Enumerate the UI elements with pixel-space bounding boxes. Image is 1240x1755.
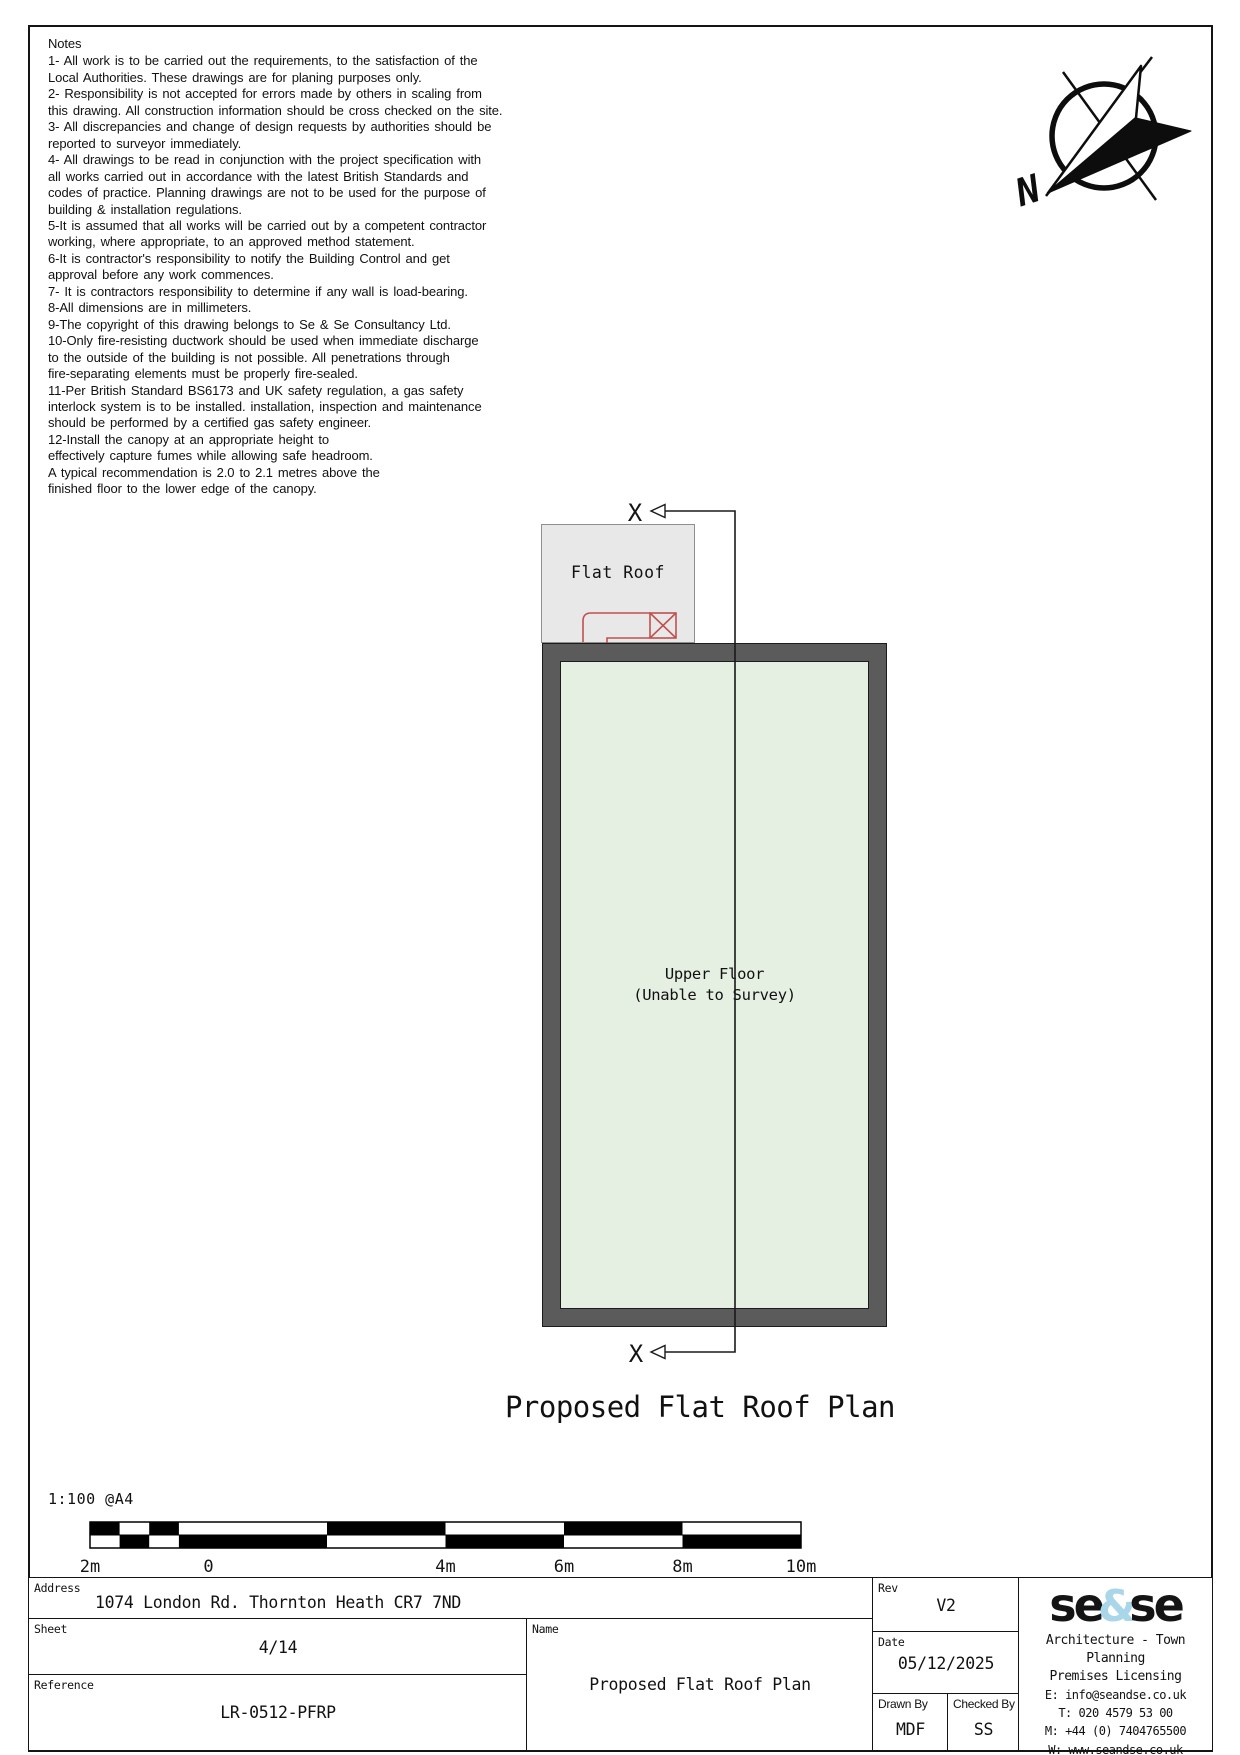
drawing-title: Proposed Flat Roof Plan: [460, 1390, 940, 1424]
name-value: Proposed Flat Roof Plan: [527, 1619, 873, 1750]
flat-roof-label: Flat Roof: [542, 563, 694, 582]
titleblock-checkedby-cell: Checked By SS: [947, 1693, 1020, 1751]
titleblock-sheet-cell: Sheet 4/14: [28, 1618, 528, 1676]
drawing-sheet: Notes 1- All work is to be carried out t…: [0, 0, 1240, 1755]
flat-roof-area: Flat Roof: [541, 524, 695, 643]
reference-value: LR-0512-PFRP: [29, 1675, 527, 1750]
notes-body: 1- All work is to be carried out the req…: [48, 53, 522, 497]
notes-title: Notes: [48, 36, 522, 52]
notes-block: Notes 1- All work is to be carried out t…: [48, 36, 522, 498]
upper-floor-label: Upper Floor: [665, 964, 764, 985]
upper-floor-area: Upper Floor (Unable to Survey): [560, 661, 869, 1309]
logo-tagline-2: Premises Licensing: [1019, 1668, 1212, 1686]
titleblock-reference-cell: Reference LR-0512-PFRP: [28, 1674, 528, 1751]
logo-phone: T: 020 4579 53 00: [1019, 1704, 1212, 1722]
upper-floor-sublabel: (Unable to Survey): [633, 985, 796, 1006]
drawnby-value: MDF: [873, 1694, 948, 1750]
logo-se-right: se: [1129, 1578, 1182, 1632]
company-logo-cell: se&se Architecture - Town Planning Premi…: [1018, 1577, 1213, 1751]
titleblock-date-cell: Date 05/12/2025: [872, 1631, 1020, 1695]
date-value: 05/12/2025: [873, 1632, 1019, 1694]
titleblock-name-cell: Name Proposed Flat Roof Plan: [526, 1618, 874, 1751]
logo-se-left: se: [1049, 1578, 1102, 1632]
logo-ampersand-icon: &: [1098, 1581, 1133, 1632]
titleblock-rev-cell: Rev V2: [872, 1577, 1020, 1633]
titleblock-address-cell: Address 1074 London Rd. Thornton Heath C…: [28, 1577, 873, 1620]
scale-ratio: 1:100 @A4: [48, 1490, 134, 1508]
sheet-value: 4/14: [29, 1619, 527, 1675]
rev-value: V2: [873, 1578, 1019, 1632]
company-logo: se&se: [1019, 1580, 1212, 1632]
logo-website: W: www.seandse.co.uk: [1019, 1741, 1212, 1755]
address-value: 1074 London Rd. Thornton Heath CR7 7ND: [29, 1578, 527, 1619]
titleblock-drawnby-cell: Drawn By MDF: [872, 1693, 949, 1751]
logo-tagline-1: Architecture - Town Planning: [1019, 1632, 1212, 1668]
building-outline: Upper Floor (Unable to Survey): [542, 643, 887, 1327]
logo-mobile: M: +44 (0) 7404765500: [1019, 1722, 1212, 1740]
logo-email: E: info@seandse.co.uk: [1019, 1686, 1212, 1704]
checkedby-value: SS: [948, 1694, 1019, 1750]
